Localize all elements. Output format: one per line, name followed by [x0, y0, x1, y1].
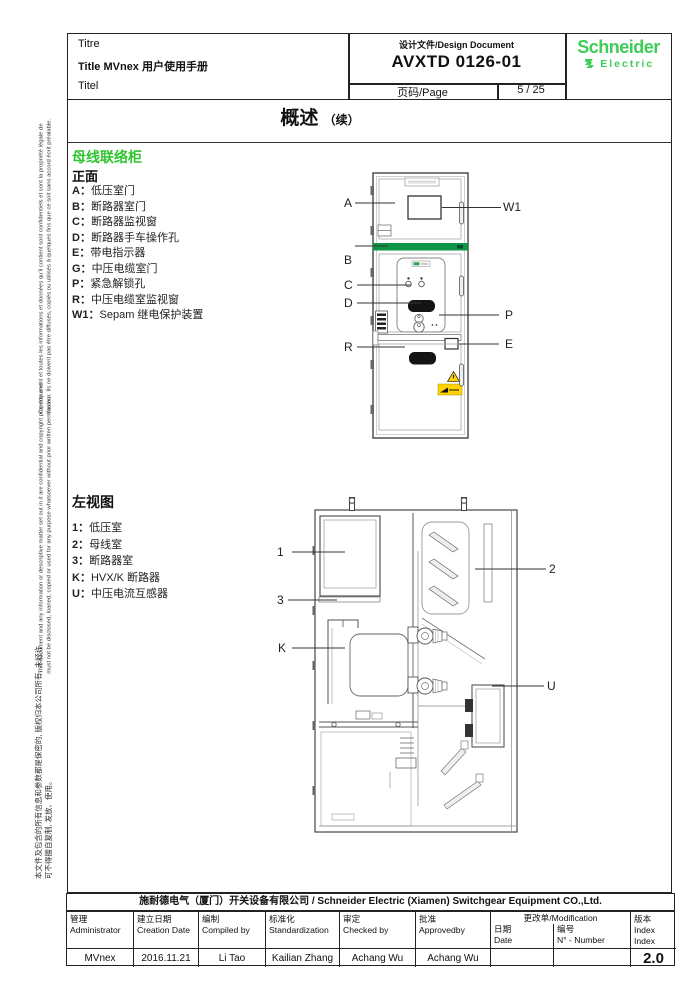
legend-key: P： — [72, 278, 90, 290]
door-handle-upper — [460, 202, 464, 224]
door-handle-lower — [460, 364, 464, 386]
col-zh: 编号 — [557, 924, 631, 935]
legend-key: R： — [72, 294, 91, 306]
green-band — [373, 243, 468, 251]
busbar-duct — [484, 524, 492, 602]
brand-sub: Electric — [600, 59, 654, 70]
legend-text: 中压电缆室门 — [92, 263, 158, 275]
legend-item: D：断路器手车操作孔 — [72, 231, 203, 247]
legend-key: 2： — [72, 539, 89, 551]
col-zh: 版本 — [634, 914, 676, 925]
front-label-b: B — [344, 253, 352, 267]
side-label-3: 3 — [277, 593, 284, 607]
nameplate-text — [408, 181, 436, 184]
legend-item: U：中压电流互感器 — [72, 586, 168, 603]
legend-item: W1：Sepam 继电保护装置 — [72, 308, 203, 324]
modification-title: 更改单/Modification — [491, 912, 630, 924]
legend-item: K：HVX/K 断路器 — [72, 570, 168, 587]
section-heading-buscoupler: 母线联络柜 — [72, 147, 142, 167]
legend-item: C：断路器监视窗 — [72, 215, 203, 231]
legend-text: 断路器室 — [89, 555, 133, 567]
legend-text: 中压电缆室监视窗 — [91, 294, 179, 306]
section-heading-sideview: 左视图 — [72, 492, 114, 512]
col-en: N° - Number — [557, 935, 631, 946]
col-mod-number: 编号 N° - Number — [554, 924, 631, 948]
legend-key: C： — [72, 216, 91, 228]
breaker-body — [350, 634, 408, 696]
col-approved-by: 批准 Approvedby — [416, 912, 491, 948]
col-creation-date: 建立日期 Creation Date — [134, 912, 199, 948]
legend-key: G： — [72, 263, 92, 275]
side-label-u: U — [547, 679, 556, 693]
page-number: 5 / 25 — [497, 84, 565, 96]
col-en: Checked by — [343, 925, 415, 936]
legend-text: 低压室门 — [91, 185, 135, 197]
cable-monitor-window — [409, 352, 436, 365]
margin-note-chinese: 本文件及包含的所有信息和参数都是保密的, 版权归本公司所有, 未经许可不得擅自复… — [34, 639, 54, 879]
legend-item: 3：断路器室 — [72, 553, 168, 570]
side-label-2: 2 — [549, 562, 556, 576]
legend-text: 中压电流互感器 — [91, 588, 168, 600]
col-zh: 管理 — [70, 914, 133, 925]
manual-page: Ce document et toutes les informations e… — [0, 0, 700, 990]
document-title: Title MVnex 用户使用手册 — [78, 58, 208, 74]
value-approved-by: Achang Wu — [416, 948, 491, 967]
margin-note-english: This document and any information or des… — [38, 374, 53, 674]
document-number: AVXTD 0126-01 — [348, 52, 565, 72]
legend-item: P：紧急解锁孔 — [72, 277, 203, 293]
value-compiled-by: Li Tao — [199, 948, 266, 967]
col-en: Compiled by — [202, 925, 265, 936]
col-modification: 更改单/Modification 日期 Date 编号 N° - Number — [491, 912, 631, 948]
legend-key: W1： — [72, 309, 100, 321]
legend-item: 1：低压室 — [72, 520, 168, 537]
legend-item: B：断路器室门 — [72, 200, 203, 216]
col-en: Date — [494, 935, 553, 946]
col-en: Approvedby — [419, 925, 490, 936]
schneider-logo-icon — [583, 57, 596, 70]
col-administrator: 管理 Administrator — [67, 912, 134, 948]
side-legend: 1：低压室 2：母线室 3：断路器室 K：HVX/K 断路器 U：中压电流互感器 — [72, 520, 168, 603]
legend-item: A：低压室门 — [72, 184, 203, 200]
page-label: 页码/Page — [348, 84, 497, 100]
approval-table: 管理 Administrator 建立日期 Creation Date 编制 C… — [66, 911, 675, 966]
front-legend: A：低压室门 B：断路器室门 C：断路器监视窗 D：断路器手车操作孔 E：带电指… — [72, 184, 203, 324]
title-rule — [67, 142, 672, 143]
legend-text: 断路器监视窗 — [91, 216, 157, 228]
legend-text: 紧急解锁孔 — [90, 278, 145, 290]
col-zh: 批准 — [419, 914, 490, 925]
company-name: 施耐德电气（厦门）开关设备有限公司 / Schneider Electric (… — [66, 893, 675, 911]
legend-item: R：中压电缆室监视窗 — [72, 293, 203, 309]
legend-text: Sepam 继电保护装置 — [100, 309, 204, 321]
legend-text: 带电指示器 — [90, 247, 145, 259]
band-step — [373, 331, 378, 345]
legend-item: E：带电指示器 — [72, 246, 203, 262]
legend-key: E： — [72, 247, 90, 259]
subsection-front: 正面 — [72, 166, 98, 185]
legend-key: 3： — [72, 555, 89, 567]
page-section-title: 概述 （续） — [200, 103, 440, 130]
label-titre: Titre — [78, 38, 100, 50]
value-creation-date: 2016.11.21 — [134, 948, 199, 967]
legend-text: 低压室 — [89, 522, 122, 534]
legend-key: B： — [72, 201, 91, 213]
sepam-relay-window — [408, 196, 441, 219]
value-standardization: Kailian Zhang — [266, 948, 340, 967]
design-document-label: 设计文件/Design Document — [348, 38, 565, 51]
label-titel: Titel — [78, 80, 98, 92]
value-mod-number — [554, 948, 631, 967]
col-checked-by: 审定 Checked by — [340, 912, 416, 948]
col-zh: 审定 — [343, 914, 415, 925]
legend-item: 2：母线室 — [72, 537, 168, 554]
legend-item: G：中压电缆室门 — [72, 262, 203, 278]
front-label-a: A — [344, 196, 352, 210]
legend-text: 断路器室门 — [91, 201, 146, 213]
col-en: Index — [634, 936, 676, 947]
front-label-c: C — [344, 278, 353, 292]
value-checked-by: Achang Wu — [340, 948, 416, 967]
value-mod-date — [491, 948, 554, 967]
panel-badge-text — [421, 263, 428, 265]
col-compiled-by: 编制 Compiled by — [199, 912, 266, 948]
panel-badge-green — [414, 262, 420, 265]
schneider-logo: Schneider Electric — [566, 38, 671, 72]
side-label-k: K — [278, 641, 286, 655]
col-zh: 日期 — [494, 924, 553, 935]
col-mod-date: 日期 Date — [491, 924, 554, 948]
front-label-e: E — [505, 337, 513, 351]
col-en: Creation Date — [137, 925, 198, 936]
legend-key: A： — [72, 185, 91, 197]
trolley-operation-hole — [408, 300, 435, 312]
legend-key: 1： — [72, 522, 89, 534]
value-index: 2.0 — [631, 948, 676, 967]
front-label-w1: W1 — [503, 200, 521, 214]
margin-note-french: Ce document et toutes les informations e… — [38, 114, 53, 414]
side-view-drawing — [272, 496, 564, 841]
title-main: 概述 — [280, 108, 318, 129]
legend-text: 母线室 — [89, 539, 122, 551]
col-zh: 标准化 — [269, 914, 339, 925]
legend-text: HVX/K 断路器 — [91, 572, 160, 584]
legend-key: K： — [72, 572, 91, 584]
green-band-mark — [457, 245, 463, 249]
brand-name: Schneider — [566, 38, 671, 56]
col-standardization: 标准化 Standardization — [266, 912, 340, 948]
col-en: Standardization — [269, 925, 339, 936]
legend-key: U： — [72, 588, 91, 600]
value-administrator: MVnex — [67, 948, 134, 967]
side-label-1: 1 — [277, 545, 284, 559]
legend-key: D： — [72, 232, 91, 244]
title-cont: （续） — [324, 113, 360, 127]
col-en: Index — [634, 925, 676, 936]
legend-text: 断路器手车操作孔 — [91, 232, 179, 244]
col-index: 版本 Index Index — [631, 912, 676, 948]
lifting-lugs — [349, 498, 467, 511]
interlock-plate — [376, 311, 388, 333]
front-label-r: R — [344, 340, 353, 354]
front-label-p: P — [505, 308, 513, 322]
col-zh: 编制 — [202, 914, 265, 925]
front-label-d: D — [344, 296, 353, 310]
col-en: Administrator — [70, 925, 133, 936]
door-handle-mid — [460, 276, 464, 296]
col-zh: 建立日期 — [137, 914, 198, 925]
